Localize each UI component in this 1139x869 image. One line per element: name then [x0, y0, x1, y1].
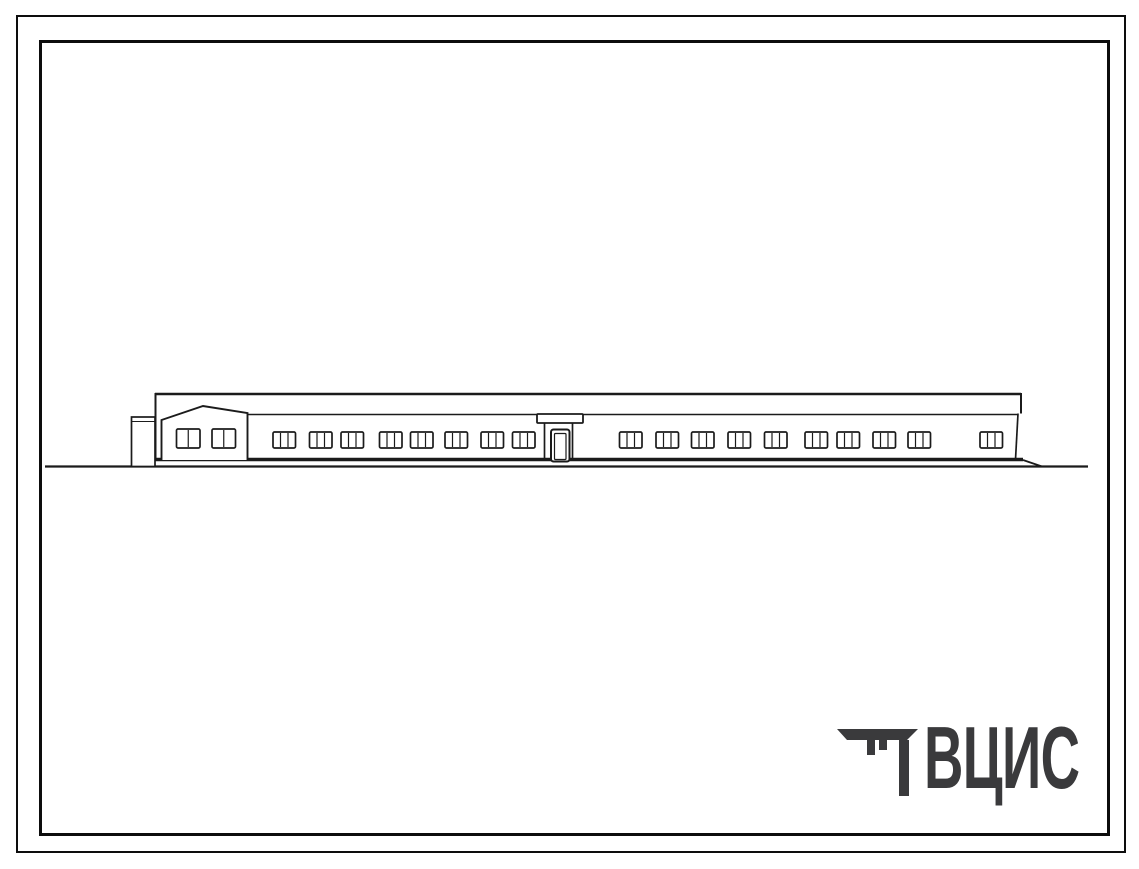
vcis-logo-text: ВЦИС — [924, 714, 1079, 802]
vcis-logo: ВЦИС — [834, 712, 1084, 812]
logo-post-1 — [867, 740, 875, 755]
entrance-door — [537, 414, 583, 462]
logo-post-right — [899, 740, 909, 796]
vcis-logo-icon — [834, 726, 928, 810]
facade-windows — [273, 432, 1003, 448]
left-annex — [132, 417, 156, 467]
drawing-sheet: ВЦИС — [0, 0, 1139, 869]
logo-post-2 — [879, 740, 887, 750]
building-edges — [156, 393, 1022, 460]
logo-cap-beam — [837, 729, 918, 740]
parapet-band — [155, 394, 1021, 415]
logo-diagonal-stripes — [846, 746, 906, 808]
